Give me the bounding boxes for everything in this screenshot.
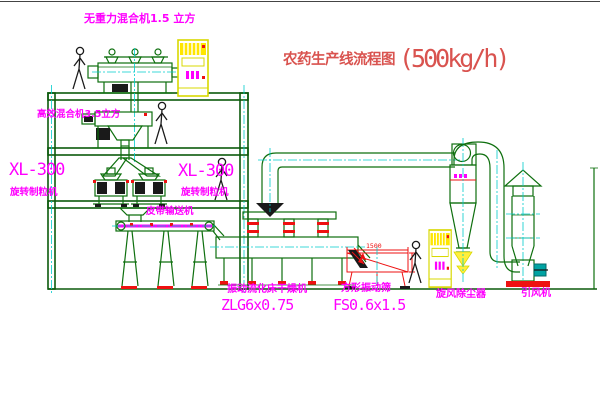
label-granulator-mid-name: 旋转制粒机 [181, 188, 229, 198]
person-at-screen [409, 241, 421, 283]
cad-flow-diagram: 农药生产线流程图 (500kg/h) 无重力混合机1.5 立方 高效混合机3.5… [0, 0, 600, 403]
label-high-eff-mixer: 高效混合机3.5立方 [37, 110, 120, 120]
granulator-feed-chute [103, 146, 159, 176]
label-zero-gravity-mixer: 无重力混合机1.5 立方 [84, 13, 195, 24]
person-roof [73, 47, 85, 89]
fluid-bed-dryer [210, 203, 370, 285]
person-level2 [155, 102, 167, 144]
belt-conveyor [112, 221, 224, 289]
label-dryer-name: 振动流化床干燥机 [227, 285, 307, 295]
label-belt-conveyor: 皮带输送机 [146, 207, 194, 217]
dim-screen-width: 1500 [366, 242, 382, 250]
label-granulator-mid-model: XL-300 [178, 163, 233, 180]
building-structure [48, 85, 598, 295]
drawing-title: 农药生产线流程图 (500kg/h) [283, 44, 507, 73]
control-cabinet-right [429, 230, 451, 287]
label-granulator-left-name: 旋转制粒机 [10, 188, 58, 198]
label-fan: 引风机 [521, 289, 551, 299]
high-efficiency-mixer [82, 48, 152, 163]
title-capacity: (500kg/h) [399, 44, 507, 73]
label-cyclone: 旋风除尘器 [436, 290, 486, 300]
label-screen-model: FS0.6x1.5 [333, 298, 405, 313]
label-dryer-model: ZLG6x0.75 [221, 298, 293, 313]
exhaust-duct [258, 148, 460, 212]
control-cabinet-top [178, 40, 208, 96]
title-text: 农药生产线流程图 [283, 48, 395, 69]
label-granulator-left-model: XL-300 [9, 162, 64, 179]
label-screen-name: 方形振动筛 [341, 284, 391, 294]
